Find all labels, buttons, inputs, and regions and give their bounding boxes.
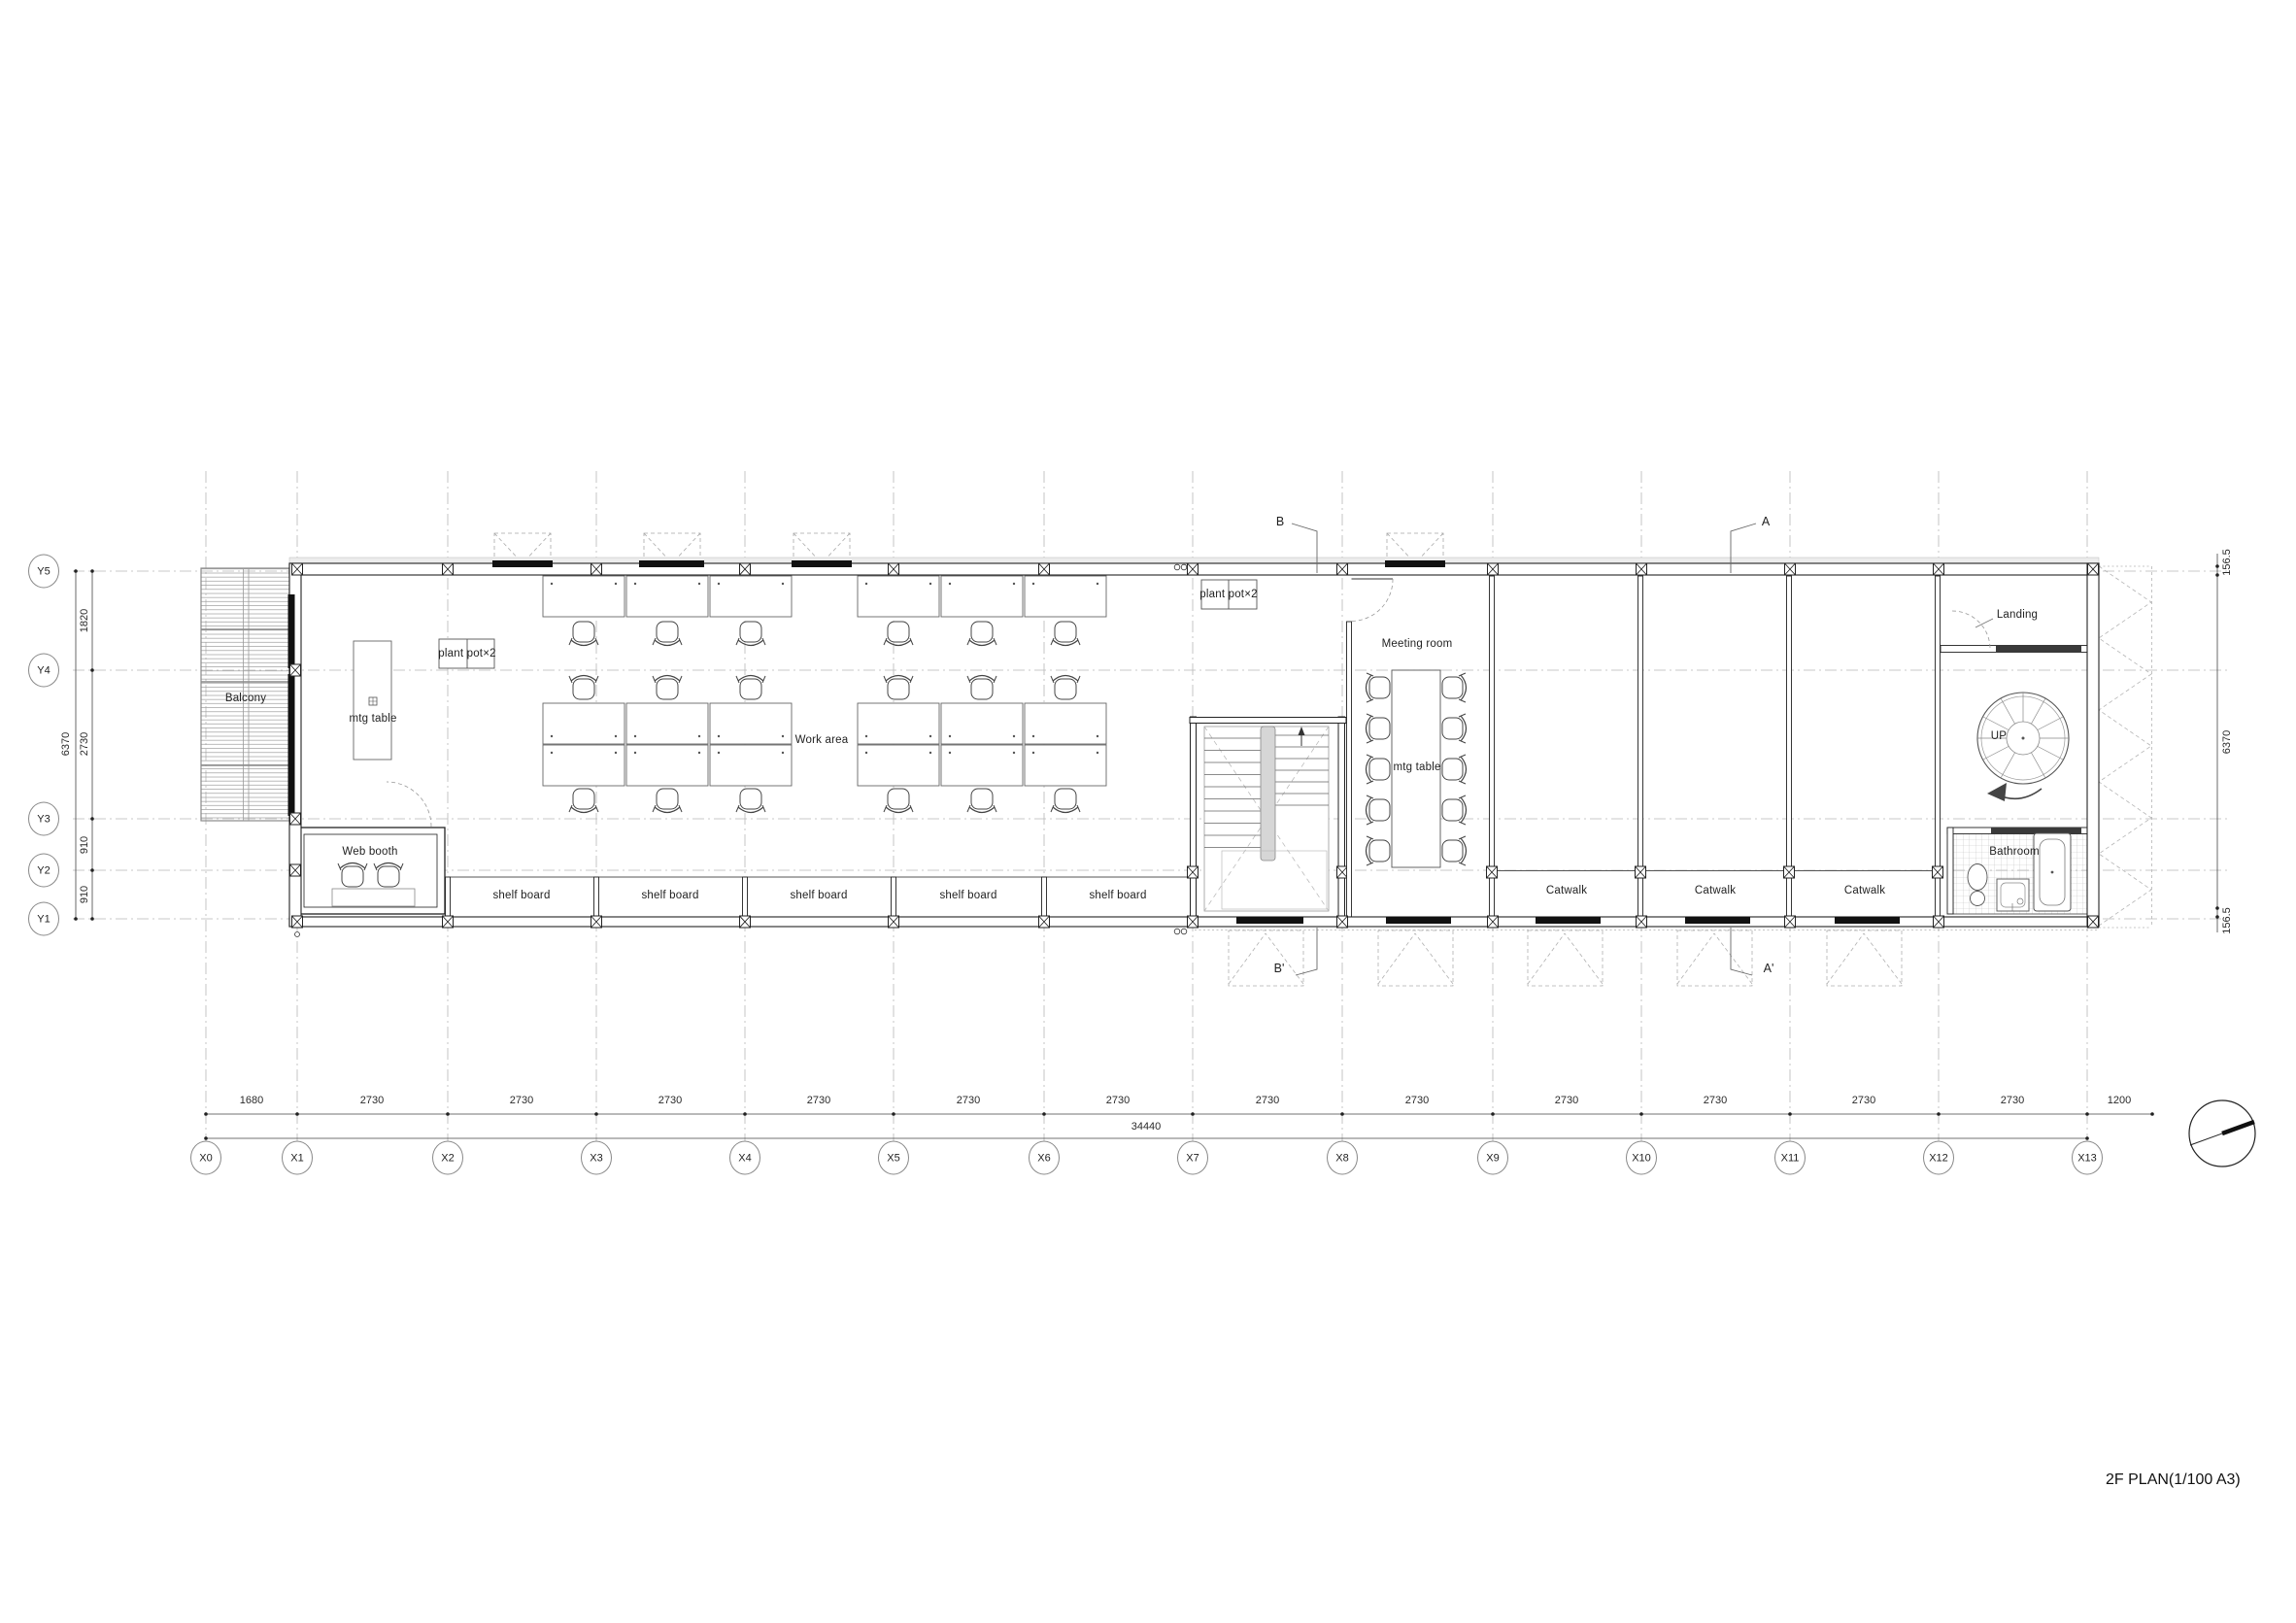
bathroom (1947, 828, 2094, 915)
drawing-title: 2F PLAN(1/100 A3) (2106, 1471, 2241, 1489)
section-lines (1292, 524, 1756, 975)
grid-bubble-x7: X7 (1177, 1141, 1208, 1175)
dim-right-mid: 6370 (2221, 730, 2233, 754)
label-mtg-table-left: mtg table (349, 713, 396, 725)
dim-x7-x8: 2730 (1256, 1095, 1279, 1106)
dim-x8-x9: 2730 (1405, 1095, 1429, 1106)
room-label-catwalk-1: Catwalk (1546, 885, 1587, 896)
room-label-catwalk-2: Catwalk (1695, 885, 1736, 896)
bathtub-icon (2034, 833, 2071, 911)
grid-bubble-x12: X12 (1923, 1141, 1954, 1175)
label-plant-pot-1: plant pot×2 (438, 648, 495, 659)
grid-bubble-y2: Y2 (28, 854, 59, 888)
dim-y3-y2: 910 (79, 836, 90, 854)
dim-x0-x1: 1680 (240, 1095, 263, 1106)
dim-x2-x3: 2730 (510, 1095, 533, 1106)
dim-y5-y4: 1820 (79, 609, 90, 632)
dim-x12-x13: 2730 (2001, 1095, 2024, 1106)
awning-braces-bottom (1195, 930, 2099, 987)
section-marker-b-prime: B' (1274, 962, 1285, 975)
room-label-catwalk-3: Catwalk (1844, 885, 1885, 896)
grid-bubble-x9: X9 (1477, 1141, 1508, 1175)
right-eave (2099, 566, 2152, 928)
dim-right-top: 156.5 (2221, 549, 2233, 576)
room-label-work-area: Work area (795, 734, 849, 746)
dim-x6-x7: 2730 (1106, 1095, 1130, 1106)
dim-x11-x12: 2730 (1852, 1095, 1875, 1106)
section-marker-a: A (1762, 515, 1770, 528)
toilet-icon (1968, 864, 1987, 906)
grid-bubble-x10: X10 (1626, 1141, 1657, 1175)
grid-bubble-x13: X13 (2072, 1141, 2103, 1175)
grid-bubble-x5: X5 (878, 1141, 909, 1175)
dim-y4-y3: 2730 (79, 732, 90, 756)
dim-y2-y1: 910 (79, 886, 90, 903)
room-label-bathroom: Bathroom (1989, 846, 2039, 858)
mtg-table-left (354, 641, 391, 760)
label-shelf-board-4: shelf board (939, 890, 996, 901)
dim-x1-x2: 2730 (360, 1095, 384, 1106)
sink-icon (1997, 879, 2029, 911)
label-shelf-board-1: shelf board (492, 890, 550, 901)
dim-x9-x10: 2730 (1555, 1095, 1578, 1106)
work-area-desks (543, 576, 1106, 786)
grid-bubble-x6: X6 (1029, 1141, 1060, 1175)
floor-plan-sheet: Balcony Web booth Work area Meeting room… (0, 0, 2296, 1623)
staircase (1188, 717, 1348, 923)
north-arrow-icon (2189, 1100, 2255, 1167)
grid-bubble-y1: Y1 (28, 902, 59, 936)
dim-x5-x6: 2730 (957, 1095, 980, 1106)
dim-total-left: 6370 (60, 732, 72, 756)
grid-bubble-x11: X11 (1774, 1141, 1806, 1175)
grid-bubble-x4: X4 (729, 1141, 760, 1175)
plan-drawing (0, 0, 2296, 1623)
label-up: UP (1991, 730, 2007, 742)
room-label-web-booth: Web booth (342, 846, 397, 858)
dim-total-bottom: 34440 (1131, 1121, 1162, 1133)
dim-eave: 1200 (2108, 1095, 2131, 1106)
label-mtg-table-meeting: mtg table (1393, 761, 1440, 773)
dim-x4-x5: 2730 (807, 1095, 830, 1106)
dim-x3-x4: 2730 (658, 1095, 682, 1106)
grid-bubble-y4: Y4 (28, 654, 59, 688)
room-label-balcony: Balcony (225, 693, 266, 704)
grid-bubble-x8: X8 (1327, 1141, 1358, 1175)
section-marker-a-prime: A' (1764, 962, 1774, 975)
dim-x10-x11: 2730 (1704, 1095, 1727, 1106)
room-label-meeting-room: Meeting room (1382, 638, 1453, 650)
grid-bubble-x0: X0 (190, 1141, 221, 1175)
grid-bubble-x2: X2 (432, 1141, 463, 1175)
label-shelf-board-3: shelf board (790, 890, 847, 901)
dim-right-bottom: 156.5 (2221, 907, 2233, 934)
label-plant-pot-2: plant pot×2 (1199, 589, 1257, 600)
grid-bubble-y5: Y5 (28, 555, 59, 589)
section-marker-b: B (1276, 515, 1284, 528)
grid-bubble-x1: X1 (282, 1141, 313, 1175)
spiral-stair (1977, 693, 2069, 801)
room-label-landing: Landing (1997, 609, 2038, 621)
label-shelf-board-2: shelf board (641, 890, 698, 901)
grid-bubble-x3: X3 (581, 1141, 612, 1175)
grid-bubble-y3: Y3 (28, 802, 59, 836)
label-shelf-board-5: shelf board (1089, 890, 1146, 901)
